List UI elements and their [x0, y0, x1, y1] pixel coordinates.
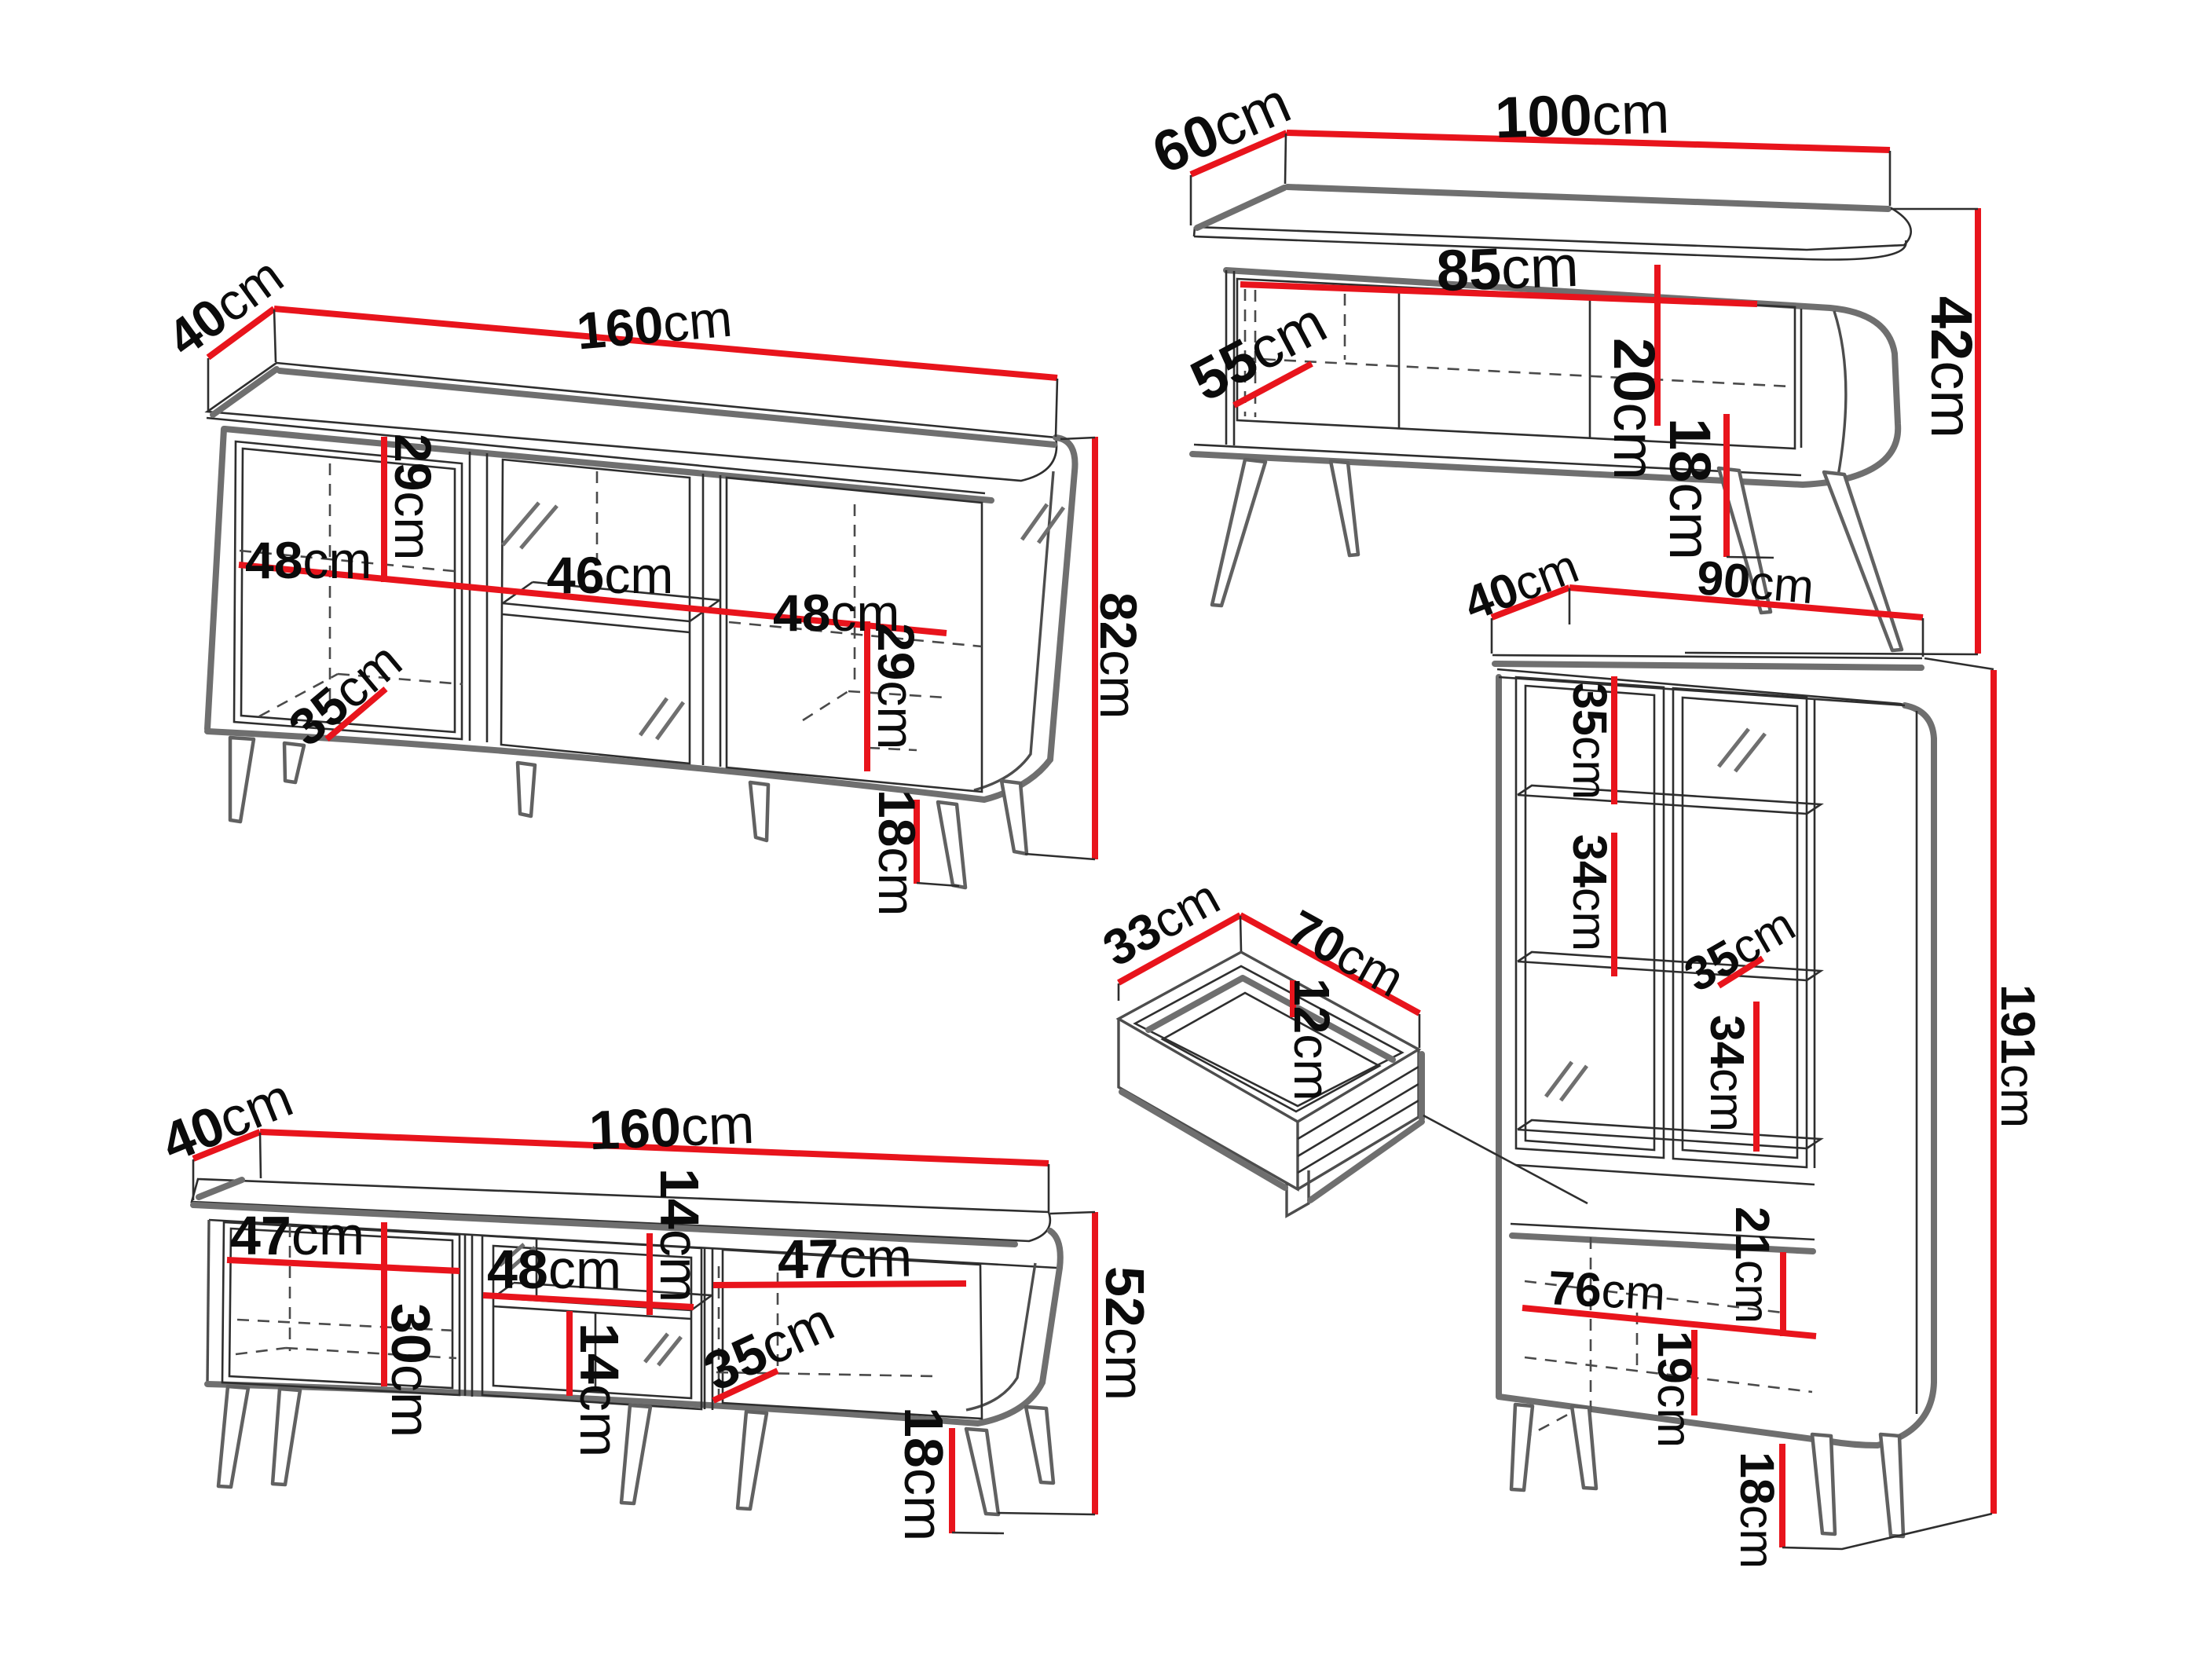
- svg-text:85cm: 85cm: [1435, 233, 1580, 303]
- svg-text:18cm: 18cm: [893, 1407, 954, 1541]
- svg-text:100cm: 100cm: [1494, 80, 1670, 151]
- svg-text:42cm: 42cm: [1919, 296, 1984, 438]
- svg-text:14cm: 14cm: [569, 1323, 630, 1457]
- svg-text:12cm: 12cm: [1284, 978, 1340, 1101]
- svg-text:82cm: 82cm: [1090, 592, 1148, 719]
- svg-text:18cm: 18cm: [1657, 418, 1723, 560]
- svg-text:34cm: 34cm: [1563, 834, 1617, 951]
- svg-text:191cm: 191cm: [1991, 984, 2045, 1128]
- svg-text:47cm: 47cm: [777, 1227, 913, 1291]
- svg-text:48cm: 48cm: [487, 1239, 621, 1300]
- svg-text:29cm: 29cm: [384, 434, 442, 560]
- svg-text:20cm: 20cm: [1602, 338, 1667, 480]
- svg-text:19cm: 19cm: [1648, 1331, 1701, 1448]
- svg-text:18cm: 18cm: [868, 789, 926, 916]
- svg-text:21cm: 21cm: [1726, 1207, 1779, 1324]
- svg-text:30cm: 30cm: [380, 1303, 441, 1437]
- svg-text:160cm: 160cm: [588, 1093, 756, 1161]
- svg-text:34cm: 34cm: [1701, 1015, 1754, 1132]
- svg-text:76cm: 76cm: [1547, 1261, 1667, 1320]
- svg-text:90cm: 90cm: [1695, 551, 1816, 613]
- svg-text:18cm: 18cm: [1730, 1452, 1784, 1569]
- svg-text:52cm: 52cm: [1094, 1266, 1155, 1401]
- svg-text:29cm: 29cm: [867, 623, 925, 749]
- svg-text:47cm: 47cm: [230, 1205, 364, 1266]
- svg-text:46cm: 46cm: [547, 546, 673, 604]
- svg-text:14cm: 14cm: [649, 1168, 710, 1302]
- svg-text:35cm: 35cm: [1563, 683, 1617, 800]
- svg-text:48cm: 48cm: [245, 531, 372, 589]
